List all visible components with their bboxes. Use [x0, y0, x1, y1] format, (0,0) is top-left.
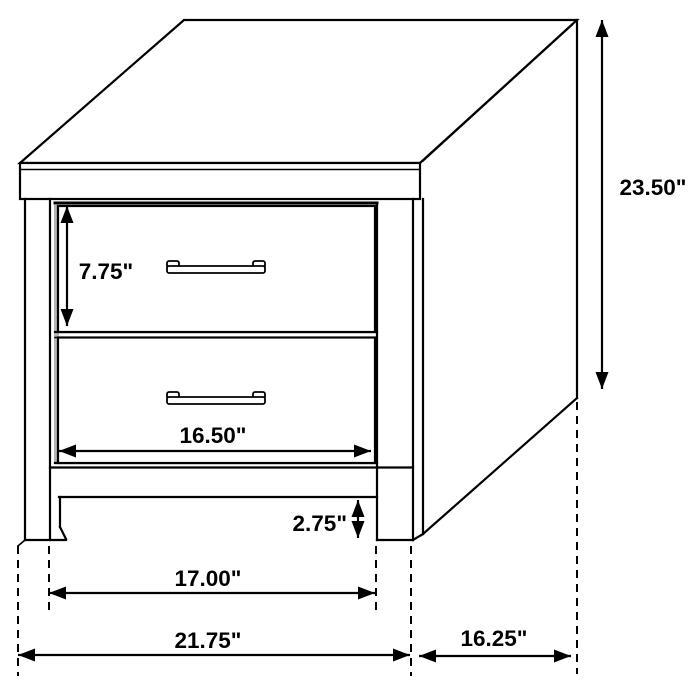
- dimension-base-clearance: 2.75": [293, 500, 358, 538]
- side-bottom-edge: [423, 398, 577, 534]
- dimension-diagram: 23.50" 7.75" 16.50" 2.75" 17.00" 21.75" …: [0, 0, 700, 700]
- left-leg-chamfer: [60, 527, 66, 539]
- dimension-overall-width: 21.75": [18, 628, 410, 655]
- overall-height-label: 23.50": [620, 175, 687, 200]
- right-leg: [377, 534, 423, 540]
- drawer-2-handle-bar: [167, 397, 265, 404]
- overall-width-label: 21.75": [175, 628, 242, 653]
- right-leg-foot-slant: [413, 534, 423, 540]
- drawer-height-label: 7.75": [79, 259, 133, 284]
- top-front-band: [20, 163, 420, 199]
- base-clearance-label: 2.75": [293, 511, 347, 536]
- overall-depth-label: 16.25": [461, 626, 528, 651]
- drawer-width-label: 16.50": [180, 423, 247, 448]
- dimension-overall-depth: 16.25": [419, 626, 571, 656]
- dimension-leg-span: 17.00": [49, 566, 375, 593]
- leg-span-label: 17.00": [175, 566, 242, 591]
- nightstand-line-drawing: 23.50" 7.75" 16.50" 2.75" 17.00" 21.75" …: [0, 0, 700, 700]
- dimension-overall-height: 23.50": [602, 20, 686, 389]
- left-leg-foot-slant: [18, 540, 25, 546]
- top-panel: [20, 20, 577, 199]
- drawer-1-handle-bar: [167, 266, 265, 273]
- top-surface: [20, 20, 577, 163]
